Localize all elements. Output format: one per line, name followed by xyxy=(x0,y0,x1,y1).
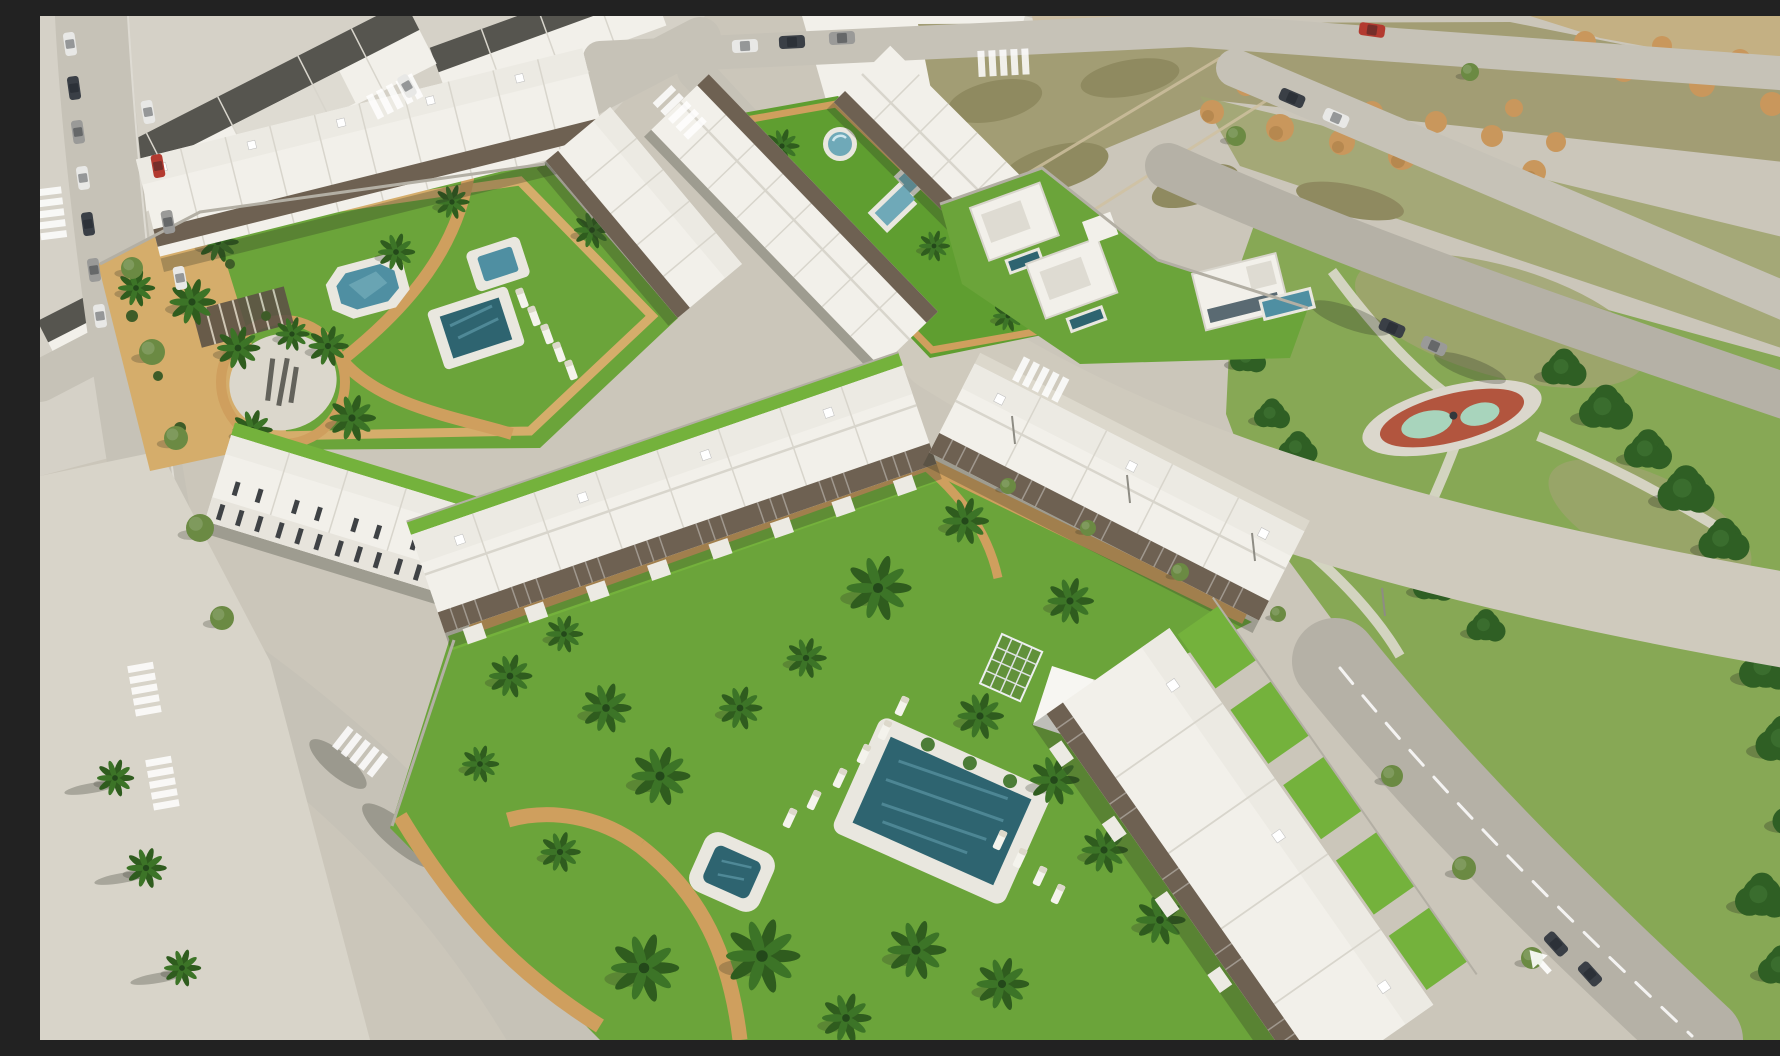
aerial-render-canvas xyxy=(40,16,1780,1040)
car xyxy=(829,31,856,45)
car xyxy=(732,39,759,53)
aerial-render: Oblique aerial architectural visualizati… xyxy=(40,16,1780,1040)
car xyxy=(779,35,806,49)
